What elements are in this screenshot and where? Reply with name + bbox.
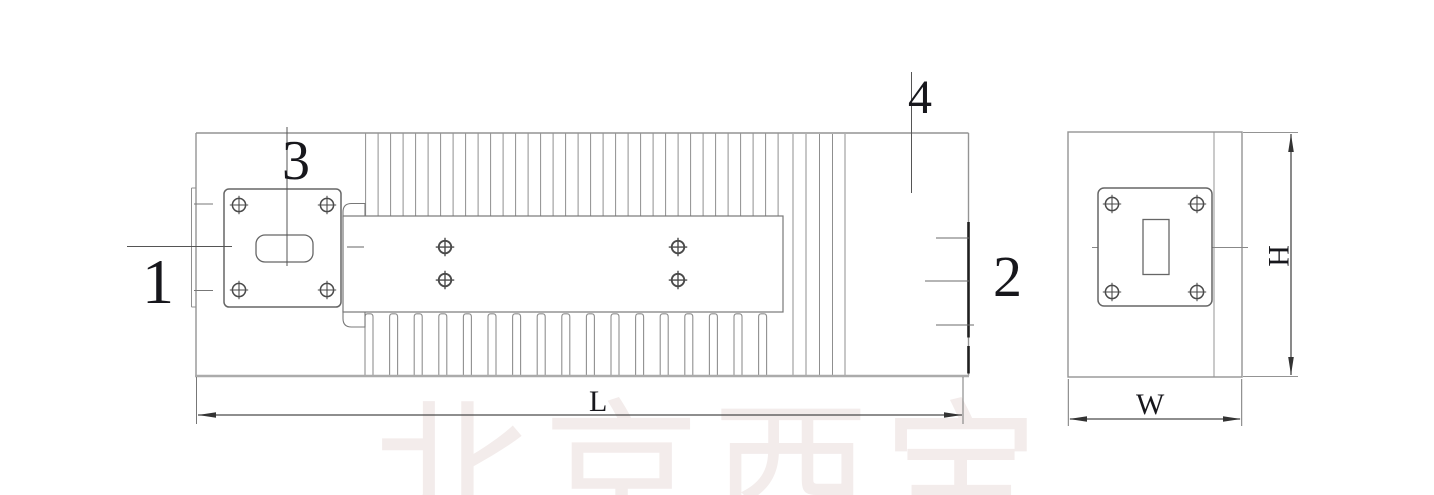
dim-length-label: L	[589, 387, 607, 417]
heatsink-fins-right	[793, 134, 845, 376]
flange-aperture	[256, 235, 313, 262]
arrowhead-left-icon	[198, 412, 216, 418]
arrowhead-down-icon	[1288, 357, 1294, 375]
dim-width-label: W	[1136, 390, 1164, 420]
heatsink-fins-top	[366, 134, 778, 217]
arrowhead-up-icon	[1288, 134, 1294, 152]
dim-height-label: H	[1263, 241, 1293, 271]
waveguide-flange-side	[224, 189, 341, 307]
callout-3-label: 3	[282, 133, 310, 189]
arrowhead-right-icon	[944, 412, 962, 418]
callout-2-mark	[925, 222, 974, 374]
callout-1-label: 1	[142, 250, 174, 314]
flange-aperture	[1143, 220, 1169, 275]
arrowhead-left-icon	[1069, 416, 1087, 422]
mounting-plate	[343, 204, 783, 328]
waveguide-flange-end	[1098, 188, 1212, 306]
side-view	[127, 72, 974, 424]
callout-2-label: 2	[993, 248, 1022, 306]
dimension-length	[197, 377, 964, 424]
technical-drawing	[0, 0, 1434, 495]
end-view	[1068, 132, 1298, 426]
arrowhead-right-icon	[1223, 416, 1241, 422]
callout-4-label: 4	[908, 74, 932, 122]
drawing-page: 北京西宝	[0, 0, 1434, 495]
heatsink-fins-bottom	[365, 314, 767, 375]
